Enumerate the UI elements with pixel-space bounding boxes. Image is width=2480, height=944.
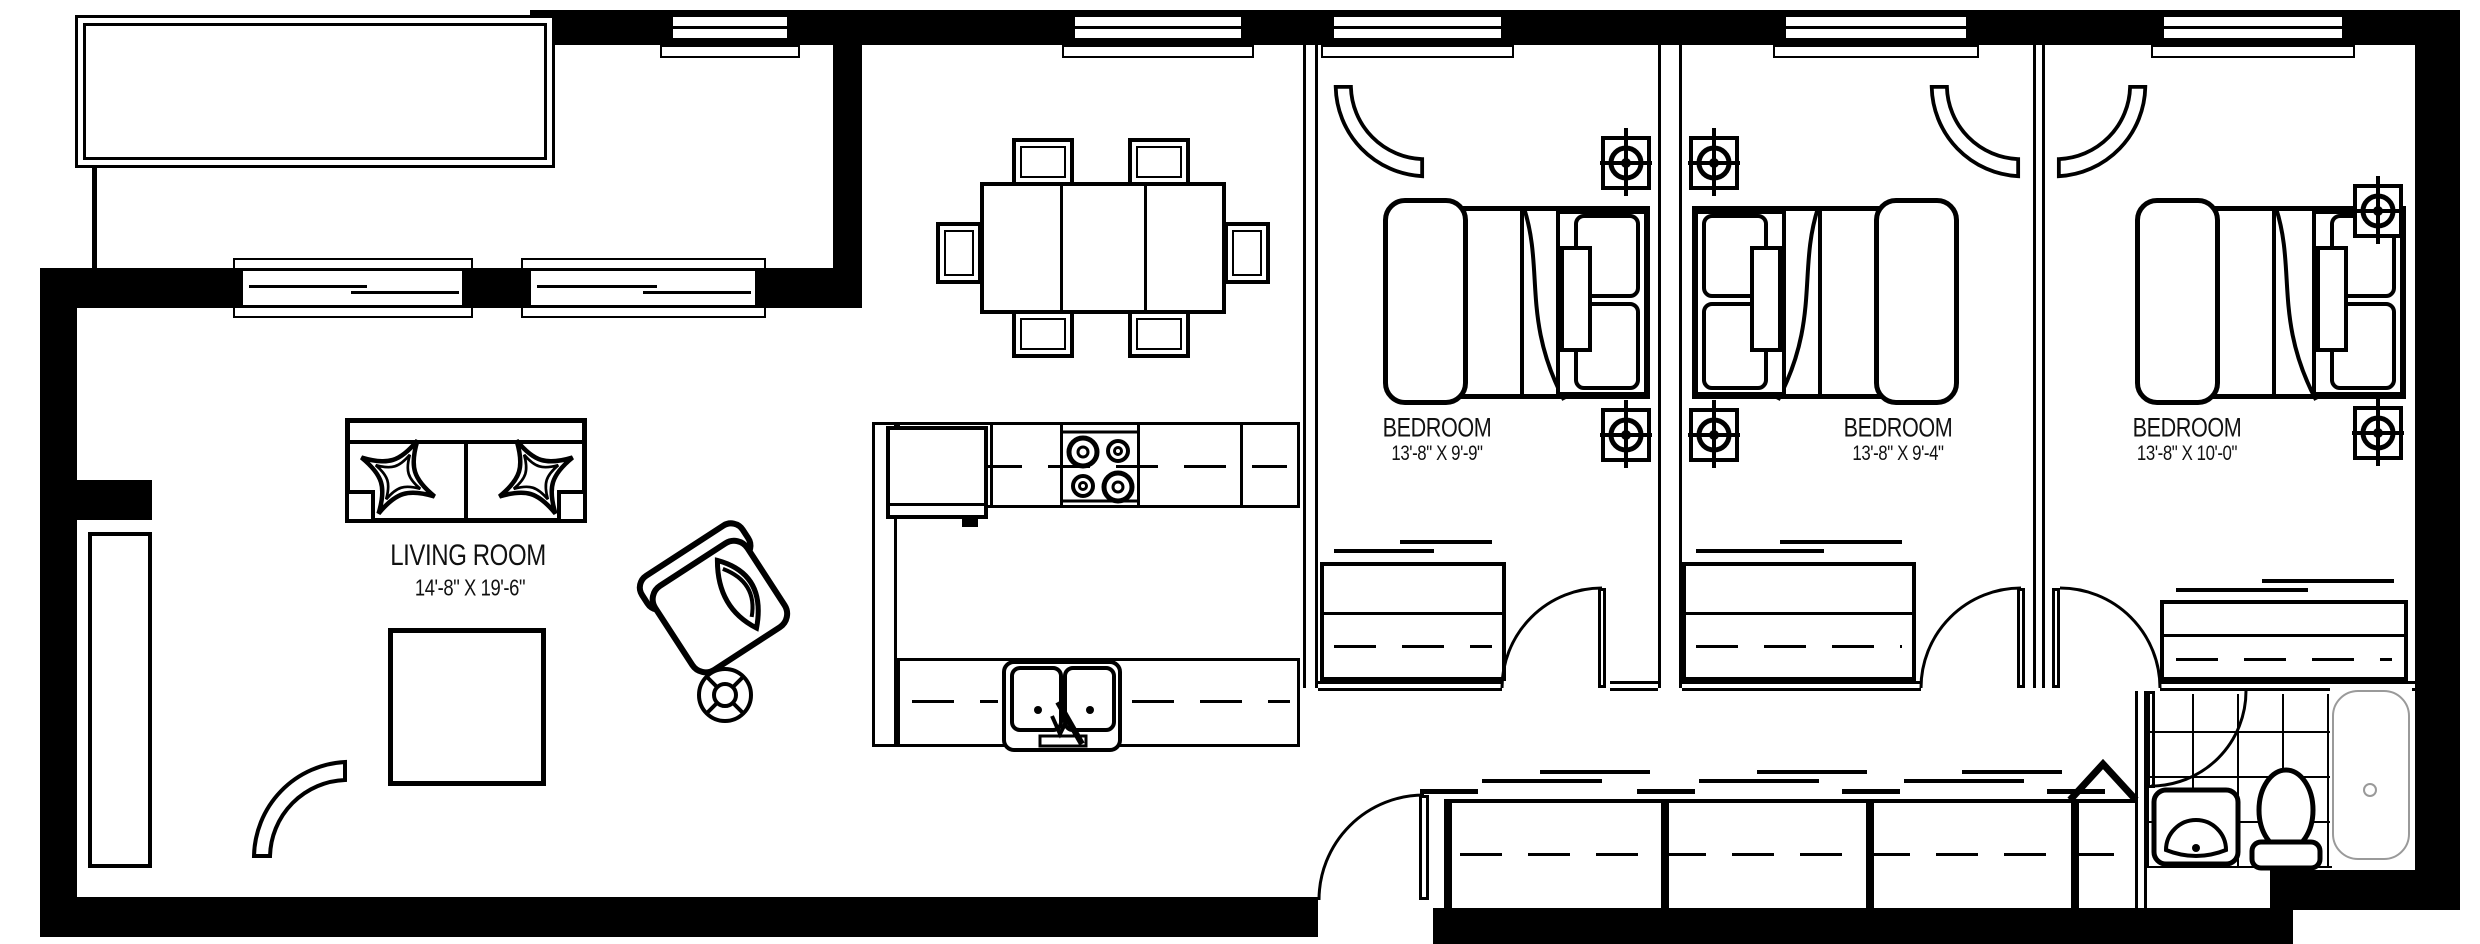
door-arc-bedroom2 xyxy=(1917,584,2025,692)
wall-balcony-step xyxy=(833,45,862,268)
dining-table-leaf-line xyxy=(1060,184,1063,312)
dresser-line xyxy=(1686,612,1912,615)
column-target-icon xyxy=(2352,176,2404,244)
corner-fan-icon xyxy=(1925,85,2022,180)
living-room-dims: 14'-8" X 19'-6" xyxy=(415,575,525,602)
column-target-icon xyxy=(1688,128,1740,196)
wall-kitchen-bedroom1 xyxy=(1303,45,1318,688)
bedroom3-label: BEDROOM xyxy=(2133,413,2242,444)
window-bedroom3 xyxy=(2161,14,2345,41)
dining-chair xyxy=(1012,138,1074,186)
bedroom1-label: BEDROOM xyxy=(1383,413,1492,444)
floor-plan: LIVING ROOM 14'-8" X 19'-6" BEDROOM 13'-… xyxy=(0,0,2480,944)
closet-post xyxy=(1444,799,1452,908)
wall-right xyxy=(2415,10,2460,910)
wall-left-stub xyxy=(77,480,152,520)
sofa-divider xyxy=(464,442,468,519)
balcony xyxy=(75,15,555,168)
closet-shelf xyxy=(1962,770,2062,774)
dresser-bedroom1 xyxy=(1320,562,1506,681)
wall-bedroom1-bedroom2 xyxy=(1658,45,1682,688)
bed-cushion xyxy=(1750,246,1782,352)
closet-post xyxy=(1661,799,1669,908)
dresser-shelf xyxy=(1696,549,1824,553)
bedroom3-dims: 13'-8" X 10'-0" xyxy=(2137,442,2237,466)
chevron-marker-icon xyxy=(2066,756,2140,804)
column-target-icon xyxy=(2352,398,2404,466)
window-bedroom2 xyxy=(1783,14,1969,41)
dresser-bedroom2 xyxy=(1682,562,1916,681)
kitchen-sink xyxy=(1002,660,1122,752)
dresser-shelf xyxy=(1780,540,1902,544)
closet-front-line xyxy=(1448,799,2135,803)
dining-chair xyxy=(936,222,982,284)
bed-duvet-foot xyxy=(1383,198,1468,405)
wall-bedroom2-bedroom3 xyxy=(2033,45,2045,688)
bed-cushion xyxy=(2316,246,2348,352)
dining-chair xyxy=(1128,310,1190,358)
door-arc-entry xyxy=(1314,790,1429,905)
closet-shelf xyxy=(1482,779,1602,783)
cabinet-dash-line xyxy=(912,700,998,703)
wall-bedroom2-south xyxy=(1682,681,1921,691)
window-sill xyxy=(1773,45,1979,58)
door-arc-bedroom1 xyxy=(1498,584,1606,692)
bedroom2-dims: 13'-8" X 9'-4" xyxy=(1852,442,1943,466)
wall-bottom-living xyxy=(40,897,1318,937)
dresser-shelf xyxy=(1334,549,1434,553)
corner-fan-icon xyxy=(248,752,348,864)
dining-chair xyxy=(1128,138,1190,186)
column-target-icon xyxy=(1600,128,1652,196)
window-dining xyxy=(1072,14,1244,41)
toilet xyxy=(2246,768,2326,872)
column-target-icon xyxy=(1600,400,1652,468)
dining-table-leaf-line xyxy=(1144,184,1147,312)
bathtub-drain xyxy=(2362,782,2378,798)
bed-duvet-foot xyxy=(2135,198,2220,405)
dresser-line xyxy=(1324,612,1502,615)
closet-post-cap xyxy=(1842,789,1900,794)
cabinet-dash-line xyxy=(1132,700,1290,703)
closet-post-cap xyxy=(1637,789,1695,794)
dresser-line xyxy=(2164,634,2404,637)
bedroom2-label: BEDROOM xyxy=(1844,413,1953,444)
window-sill xyxy=(1062,45,1254,58)
dresser-dash xyxy=(2176,658,2392,661)
sliding-window-living-1 xyxy=(240,268,465,308)
dresser-dash xyxy=(1696,645,1902,648)
bed-cushion xyxy=(1560,246,1592,352)
window-balcony xyxy=(670,14,790,41)
sliding-window-living-2 xyxy=(528,268,758,308)
dresser-shelf xyxy=(2176,588,2308,592)
bedroom1-dims: 13'-8" X 9'-9" xyxy=(1391,442,1482,466)
window-sill xyxy=(2151,45,2355,58)
wall-bottom-hall xyxy=(1433,908,2293,944)
column-target-icon xyxy=(1688,400,1740,468)
window-sill xyxy=(660,45,800,58)
wall-bedroom1-south-b xyxy=(1610,681,1658,691)
balcony-rail-left xyxy=(92,168,97,268)
closet-shelf xyxy=(1904,779,2024,783)
closet-post xyxy=(1866,799,1874,908)
bathroom-sink xyxy=(2150,786,2242,868)
closet-post xyxy=(2071,799,2079,908)
refrigerator-handle xyxy=(962,517,978,527)
dresser-dash xyxy=(1334,645,1492,648)
storage-unit xyxy=(88,532,152,868)
window-bedroom1 xyxy=(1331,14,1504,41)
closet-shelf xyxy=(1757,770,1867,774)
dresser-bedroom3 xyxy=(2160,600,2408,681)
dining-chair xyxy=(1012,310,1074,358)
window-sill xyxy=(1321,45,1514,58)
wall-left xyxy=(40,268,77,937)
ceiling-light-icon xyxy=(696,666,754,724)
coffee-table xyxy=(388,628,546,786)
dining-table xyxy=(980,182,1226,314)
corner-fan-icon xyxy=(1330,85,1425,180)
closet-post-cap xyxy=(1420,789,1478,794)
wall-bedroom1-south-a xyxy=(1318,681,1502,691)
dining-chair xyxy=(1224,222,1270,284)
bed-duvet-foot xyxy=(1874,198,1959,405)
bathtub xyxy=(2332,690,2410,860)
dresser-shelf xyxy=(2262,579,2394,583)
closet-shelf xyxy=(1540,770,1650,774)
closet-dash xyxy=(1460,853,2123,856)
living-room-label: LIVING ROOM xyxy=(390,539,546,573)
stove-icon xyxy=(1060,428,1140,505)
door-arc-bedroom3 xyxy=(2056,584,2164,692)
dresser-shelf xyxy=(1400,540,1492,544)
corner-fan-icon xyxy=(2055,85,2152,180)
closet-shelf xyxy=(1699,779,1819,783)
refrigerator-door-line xyxy=(890,503,984,506)
